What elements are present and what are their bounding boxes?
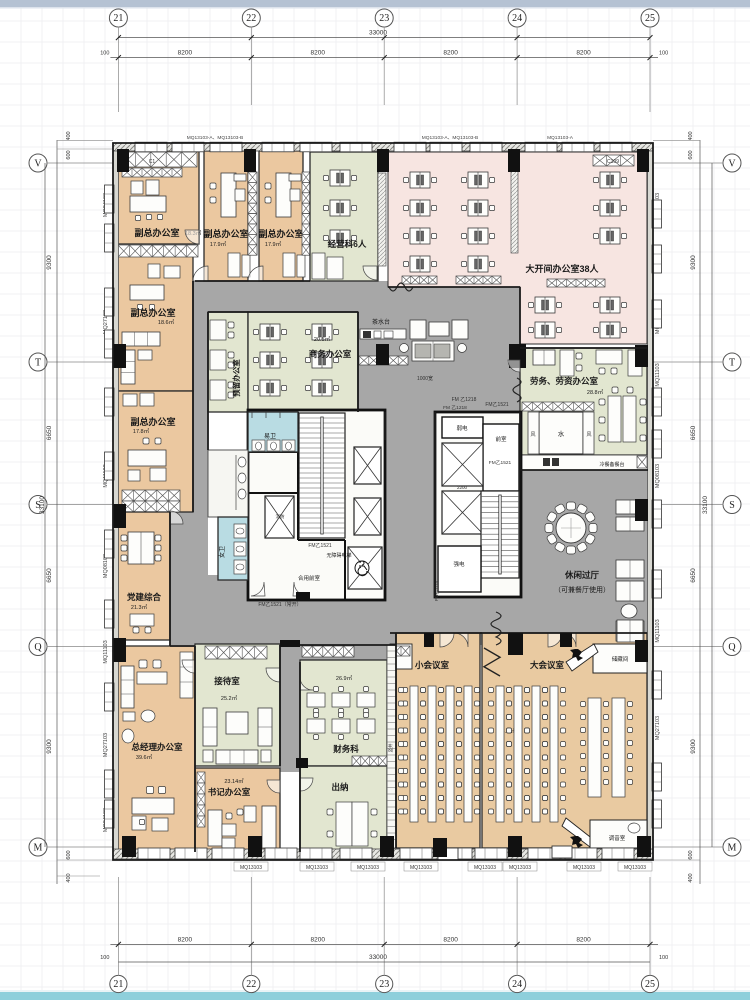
svg-text:V: V — [34, 158, 42, 169]
svg-text:V: V — [728, 158, 736, 169]
svg-text:8200: 8200 — [443, 937, 458, 944]
svg-text:T: T — [729, 357, 735, 368]
svg-text:副总办公室: 副总办公室 — [130, 416, 175, 427]
svg-text:1000宽: 1000宽 — [417, 375, 433, 382]
svg-text:预留办公室: 预留办公室 — [231, 359, 241, 397]
svg-text:100: 100 — [659, 51, 668, 57]
svg-text:6650: 6650 — [46, 568, 53, 583]
svg-text:休闲过厅: 休闲过厅 — [564, 570, 600, 580]
svg-text:21.3㎡: 21.3㎡ — [131, 603, 148, 611]
svg-text:8200: 8200 — [576, 937, 591, 944]
svg-text:6650: 6650 — [690, 568, 697, 583]
svg-text:财务科: 财务科 — [332, 744, 359, 754]
svg-text:39.6㎡: 39.6㎡ — [136, 753, 153, 761]
svg-text:MQ13103-A、MQ13103-B: MQ13103-A、MQ13103-B — [422, 135, 479, 141]
svg-text:8200: 8200 — [178, 937, 193, 944]
svg-text:强电: 强电 — [453, 560, 465, 568]
svg-text:MQ13103-A、MQ13103-B: MQ13103-A、MQ13103-B — [187, 135, 244, 141]
svg-text:100: 100 — [100, 51, 109, 57]
svg-text:MQ27103: MQ27103 — [103, 733, 109, 757]
svg-text:大开间办公室38人: 大开间办公室38人 — [525, 263, 599, 274]
svg-text:100: 100 — [100, 955, 109, 961]
svg-text:8200: 8200 — [178, 50, 193, 57]
svg-text:MQ13103: MQ13103 — [573, 865, 595, 871]
svg-text:S: S — [729, 500, 735, 511]
svg-text:23: 23 — [379, 979, 389, 990]
svg-text:MQ13103: MQ13103 — [306, 865, 328, 871]
svg-text:劳务、劳资办公室: 劳务、劳资办公室 — [530, 376, 599, 386]
svg-text:冷餐备餐台: 冷餐备餐台 — [599, 461, 624, 468]
svg-text:经营科6人: 经营科6人 — [328, 239, 367, 249]
svg-text:9300: 9300 — [46, 739, 53, 754]
svg-text:9300: 9300 — [690, 739, 697, 754]
svg-text:接待室: 接待室 — [214, 676, 240, 686]
svg-text:弱电: 弱电 — [456, 424, 468, 432]
svg-text:副总办公室: 副总办公室 — [203, 228, 248, 239]
svg-text:25.2㎡: 25.2㎡ — [221, 694, 238, 702]
svg-text:前室: 前室 — [495, 435, 507, 443]
svg-text:400: 400 — [688, 131, 694, 140]
svg-text:储藏间: 储藏间 — [612, 655, 629, 663]
svg-text:水: 水 — [558, 429, 565, 438]
svg-text:8200: 8200 — [576, 50, 591, 57]
svg-text:MQ11103: MQ11103 — [655, 363, 661, 386]
svg-text:党建综合: 党建综合 — [127, 592, 162, 602]
svg-text:6650: 6650 — [46, 425, 53, 440]
svg-text:23.14㎡: 23.14㎡ — [224, 777, 244, 785]
svg-text:600: 600 — [688, 850, 694, 859]
svg-text:600: 600 — [688, 150, 694, 159]
svg-text:22: 22 — [246, 13, 256, 24]
svg-text:合用前室: 合用前室 — [298, 574, 321, 582]
svg-text:17.9㎡: 17.9㎡ — [265, 240, 282, 248]
svg-text:23: 23 — [379, 13, 389, 24]
svg-text:出纳: 出纳 — [331, 782, 348, 792]
svg-text:8200: 8200 — [311, 937, 326, 944]
svg-text:C1: C1 — [149, 159, 156, 165]
svg-text:24: 24 — [512, 13, 522, 24]
svg-text:24: 24 — [512, 979, 522, 990]
svg-text:20.5㎡: 20.5㎡ — [314, 335, 331, 343]
svg-text:商务办公室: 商务办公室 — [309, 349, 352, 359]
svg-text:竖井: 竖井 — [387, 743, 394, 752]
svg-text:无障碍电梯: 无障碍电梯 — [326, 552, 351, 559]
svg-text:MQ13103: MQ13103 — [410, 865, 432, 871]
svg-text:2200: 2200 — [457, 485, 468, 490]
svg-text:33100: 33100 — [702, 496, 709, 514]
svg-text:调音室: 调音室 — [609, 834, 626, 842]
svg-text:副总办公室: 副总办公室 — [258, 228, 303, 239]
svg-text:FM乙1521: FM乙1521 — [485, 401, 509, 408]
svg-text:MQ13103: MQ13103 — [624, 865, 646, 871]
svg-text:小会议室: 小会议室 — [414, 660, 450, 670]
svg-text:易卫: 易卫 — [264, 433, 276, 440]
svg-text:Q: Q — [728, 642, 736, 653]
svg-text:FM乙1521（常开）: FM乙1521（常开） — [258, 601, 301, 608]
svg-text:17.8㎡: 17.8㎡ — [133, 427, 150, 435]
svg-text:消防: 消防 — [276, 513, 285, 520]
svg-text:FM 乙1218: FM 乙1218 — [443, 404, 467, 411]
svg-text:MQ13103-A: MQ13103-A — [547, 135, 574, 141]
svg-text:6650: 6650 — [690, 425, 697, 440]
svg-text:副总办公室: 副总办公室 — [134, 227, 179, 238]
svg-text:FM乙1118: FM乙1118 — [433, 580, 439, 601]
svg-text:总经理办公室: 总经理办公室 — [131, 742, 183, 752]
svg-text:100: 100 — [659, 955, 668, 961]
svg-text:28.8㎡: 28.8㎡ — [587, 388, 604, 396]
svg-text:M: M — [728, 842, 737, 853]
svg-text:女卫: 女卫 — [218, 546, 226, 558]
svg-text:9300: 9300 — [690, 255, 697, 270]
svg-text:Q: Q — [34, 642, 42, 653]
svg-text:400: 400 — [688, 873, 694, 882]
svg-text:风: 风 — [586, 432, 591, 438]
svg-text:22: 22 — [246, 979, 256, 990]
svg-text:风: 风 — [530, 432, 535, 438]
svg-text:25: 25 — [645, 979, 655, 990]
svg-text:MQ27103: MQ27103 — [655, 716, 661, 740]
svg-text:T: T — [35, 357, 41, 368]
svg-text:茶水台: 茶水台 — [372, 318, 390, 326]
svg-text:600: 600 — [66, 850, 72, 859]
svg-text:FM乙1521: FM乙1521 — [308, 542, 332, 549]
svg-text:25: 25 — [645, 13, 655, 24]
svg-text:FM乙1521: FM乙1521 — [489, 459, 512, 466]
svg-text:MQ11103: MQ11103 — [655, 619, 661, 642]
svg-text:书记办公室: 书记办公室 — [208, 787, 251, 797]
svg-text:33000: 33000 — [369, 30, 387, 37]
svg-text:8200: 8200 — [311, 50, 326, 57]
svg-text:21: 21 — [113, 979, 123, 990]
svg-text:400: 400 — [66, 873, 72, 882]
svg-text:26.9㎡: 26.9㎡ — [336, 674, 353, 682]
svg-text:MQ08103: MQ08103 — [655, 464, 661, 488]
svg-text:MQ13103: MQ13103 — [357, 865, 379, 871]
svg-text:18.6㎡: 18.6㎡ — [158, 318, 175, 326]
svg-text:600: 600 — [66, 150, 72, 159]
svg-text:FM 乙1218: FM 乙1218 — [452, 396, 477, 403]
svg-text:副总办公室: 副总办公室 — [130, 307, 175, 318]
svg-text:17.9㎡: 17.9㎡ — [210, 240, 227, 248]
svg-text:MQ13103: MQ13103 — [474, 865, 496, 871]
svg-text:33000: 33000 — [369, 954, 387, 961]
svg-text:8200: 8200 — [443, 50, 458, 57]
svg-text:9300: 9300 — [46, 255, 53, 270]
svg-text:C109: C109 — [607, 159, 619, 165]
svg-text:MQ11103: MQ11103 — [103, 640, 109, 663]
svg-text:400: 400 — [66, 131, 72, 140]
svg-text:MQ13103: MQ13103 — [240, 865, 262, 871]
svg-text:M: M — [34, 842, 43, 853]
svg-text:（可兼餐厅使用）: （可兼餐厅使用） — [554, 585, 610, 594]
svg-text:21: 21 — [113, 13, 123, 24]
svg-text:大会议室: 大会议室 — [530, 660, 565, 670]
svg-text:33100: 33100 — [39, 496, 46, 514]
svg-text:MQ13103: MQ13103 — [509, 865, 531, 871]
